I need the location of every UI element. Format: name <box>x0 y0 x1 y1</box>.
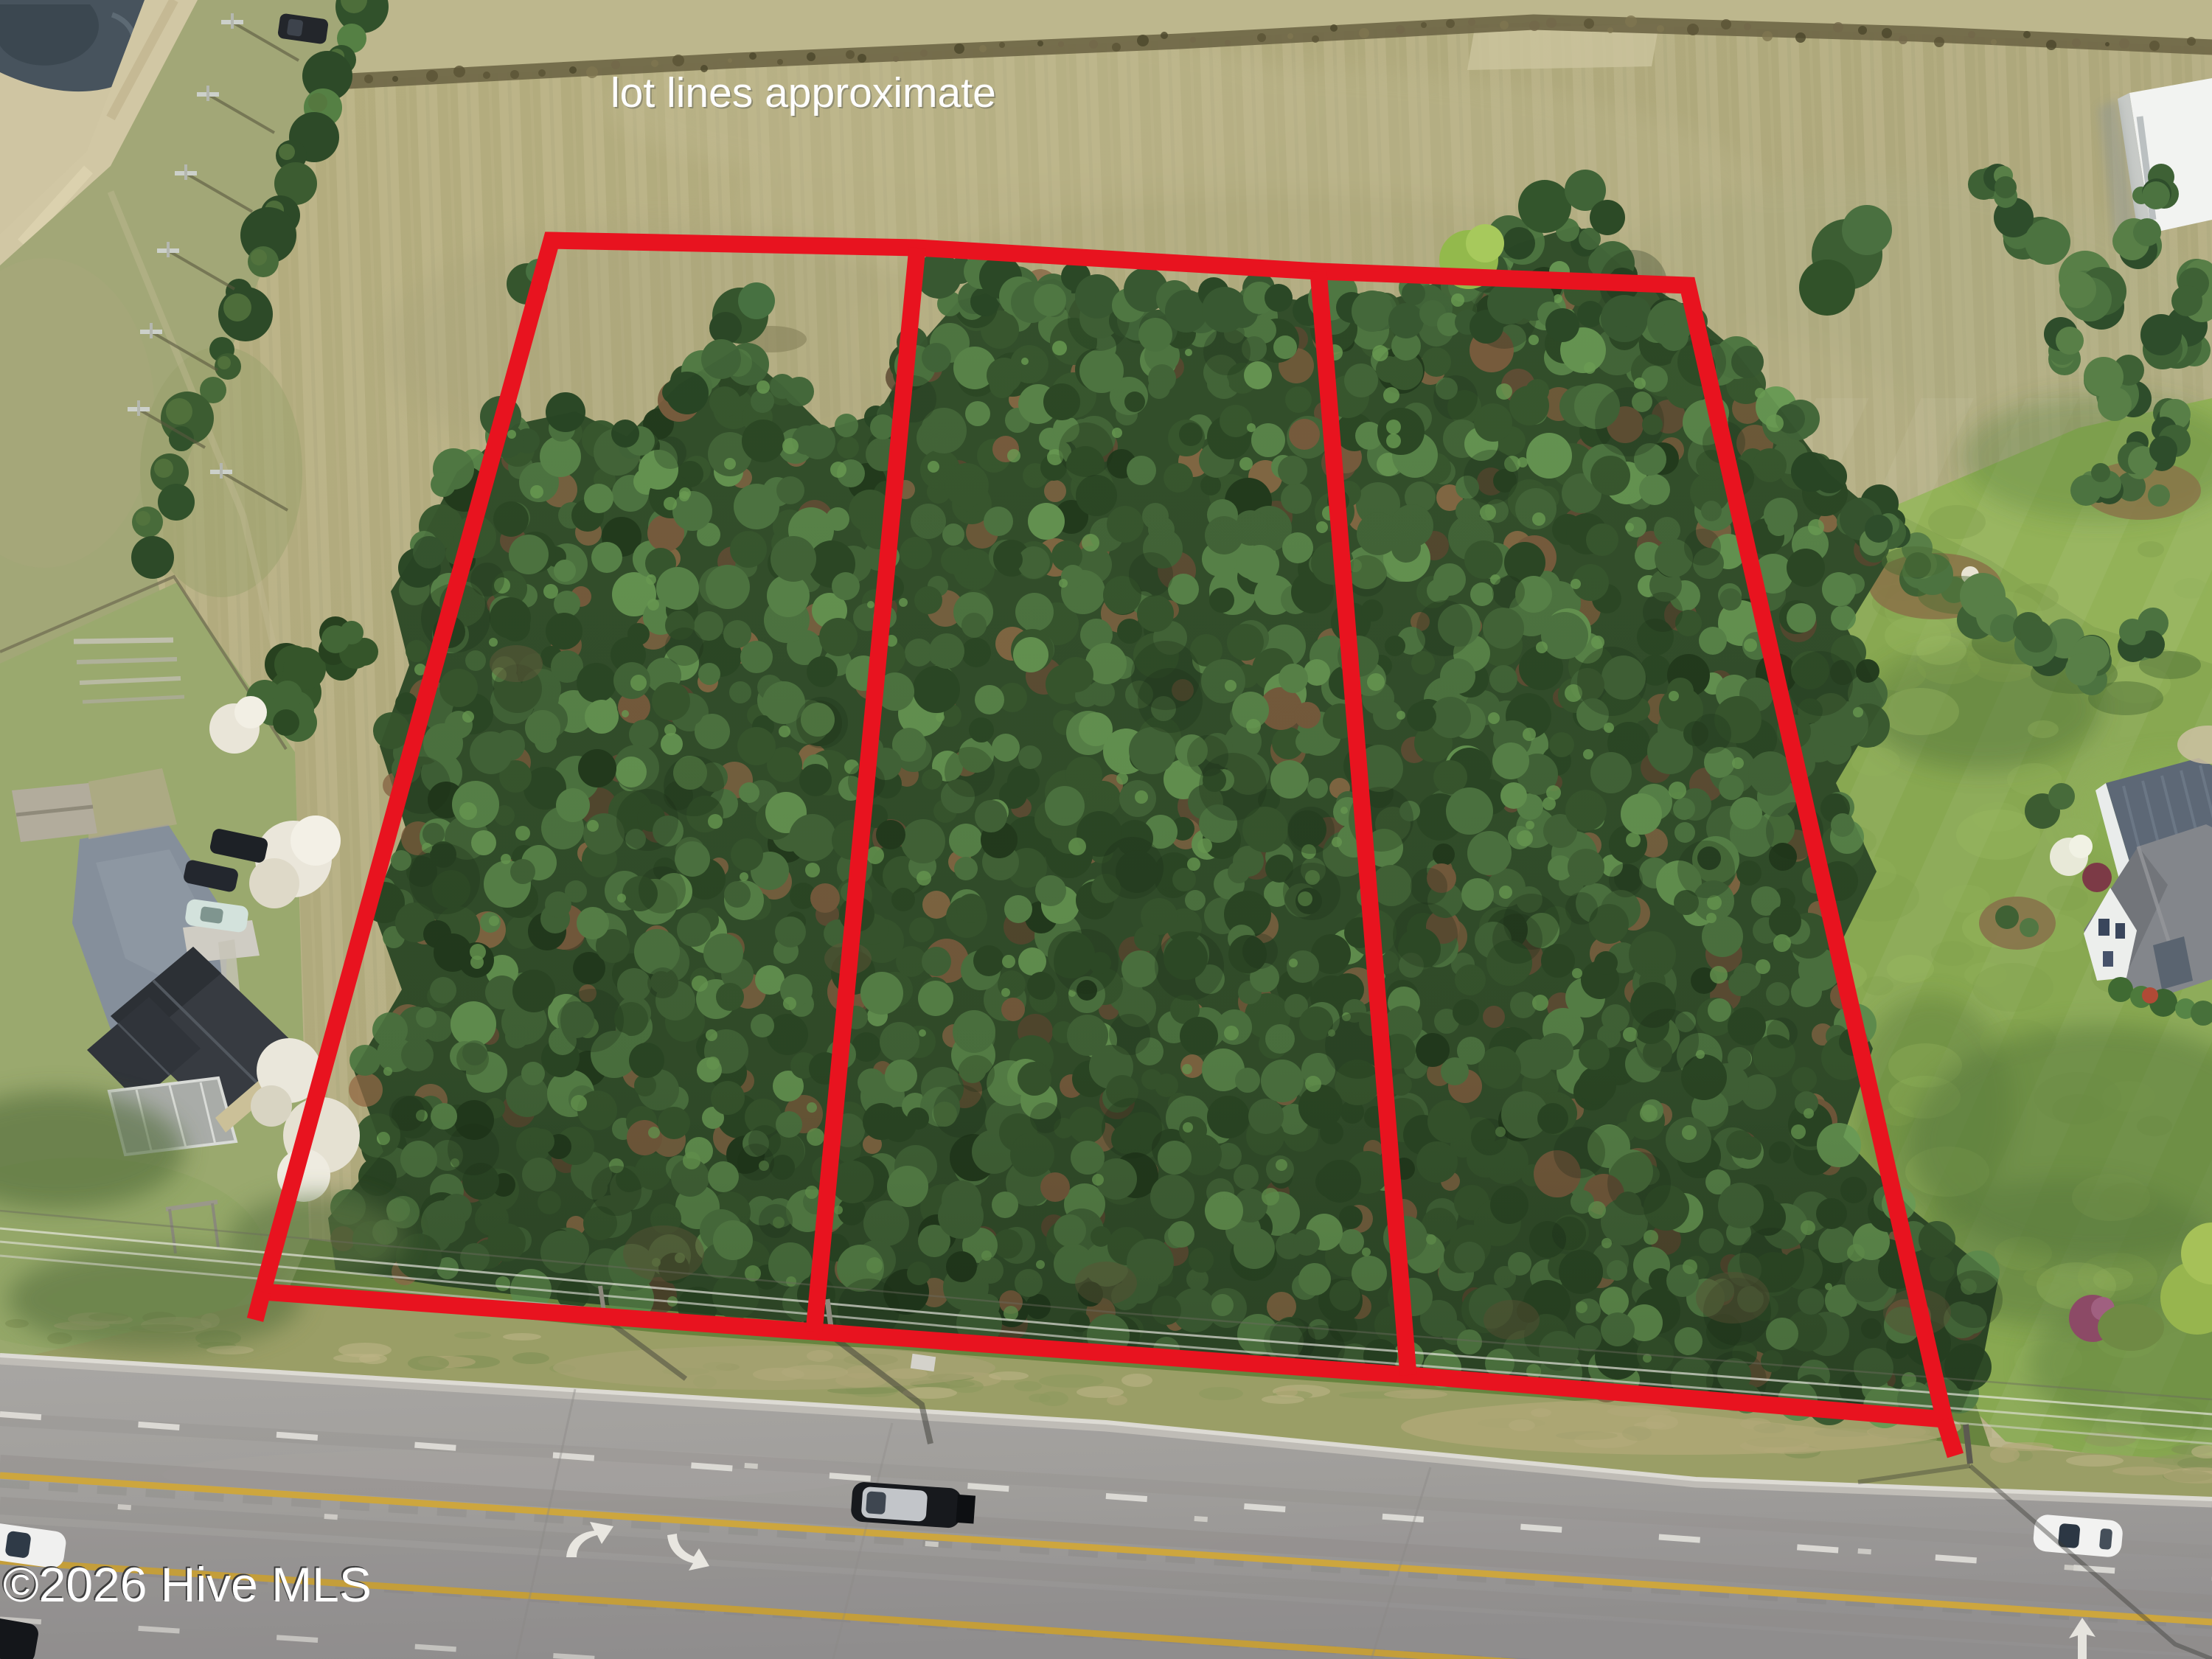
svg-text:©2026 Hive MLS: ©2026 Hive MLS <box>3 1557 372 1612</box>
svg-text:lot lines approximate: lot lines approximate <box>611 69 996 116</box>
